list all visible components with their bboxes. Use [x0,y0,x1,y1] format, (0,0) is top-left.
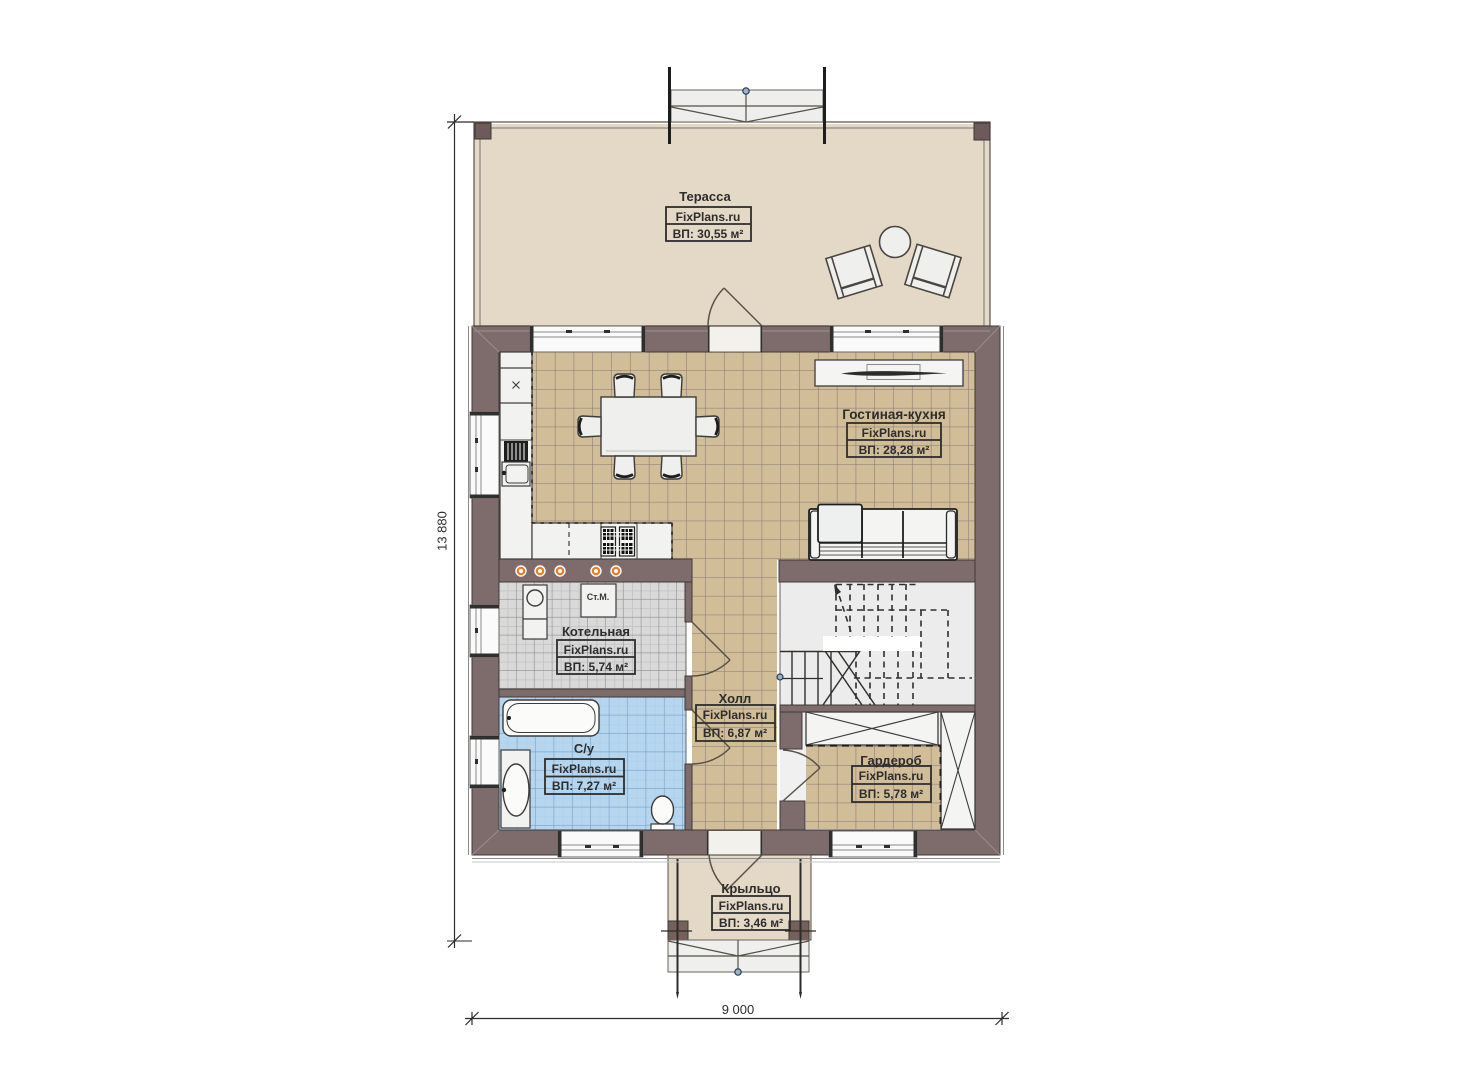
svg-text:FixPlans.ru: FixPlans.ru [703,708,768,722]
svg-text:FixPlans.ru: FixPlans.ru [862,426,927,440]
svg-text:Крыльцо: Крыльцо [721,881,780,896]
svg-text:Терасса: Терасса [679,189,731,204]
svg-text:ВП: 30,55 м²: ВП: 30,55 м² [673,227,744,241]
svg-text:13 880: 13 880 [435,511,450,551]
svg-text:FixPlans.ru: FixPlans.ru [719,899,784,913]
svg-text:ВП: 3,46 м²: ВП: 3,46 м² [719,916,783,930]
svg-text:ВП: 5,74 м²: ВП: 5,74 м² [564,660,628,674]
svg-text:С/у: С/у [574,741,595,756]
svg-text:FixPlans.ru: FixPlans.ru [564,643,629,657]
svg-text:Котельная: Котельная [562,624,630,639]
svg-text:FixPlans.ru: FixPlans.ru [552,762,617,776]
svg-text:ВП: 5,78 м²: ВП: 5,78 м² [859,787,923,801]
svg-text:FixPlans.ru: FixPlans.ru [676,210,741,224]
svg-text:ВП: 7,27 м²: ВП: 7,27 м² [552,779,616,793]
svg-text:Ст.М.: Ст.М. [587,592,610,602]
svg-text:9 000: 9 000 [722,1002,755,1017]
svg-text:Гостиная-кухня: Гостиная-кухня [842,407,945,422]
svg-text:ВП: 6,87 м²: ВП: 6,87 м² [703,726,767,740]
svg-text:ВП: 28,28 м²: ВП: 28,28 м² [859,443,930,457]
svg-text:Холл: Холл [719,691,752,706]
svg-text:FixPlans.ru: FixPlans.ru [859,769,924,783]
